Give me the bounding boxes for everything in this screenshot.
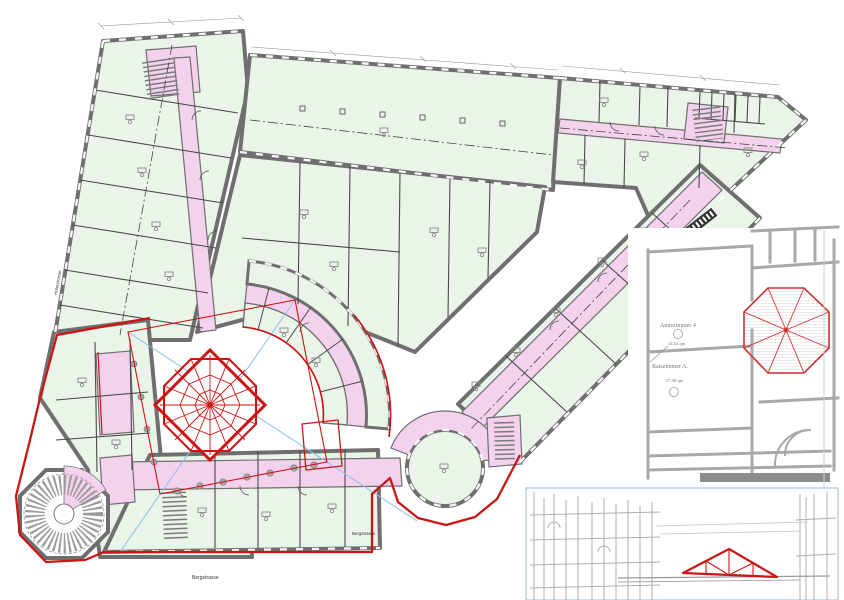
street-label-middle: Bergstrasse [352,531,376,536]
street-label-bottom: Bergstrasse [192,575,219,581]
spiral-stair-tower [20,466,108,558]
floor-plan-drawing: Bergstrasse Bergstrasse Hohestrasse [0,0,844,600]
inset-room1-label: Amtszimmer 4 [660,323,696,329]
inset-section-drawing [526,488,838,600]
inset-room2-label: Ratszimmer A. [652,364,688,370]
inset-octagon-overlay [744,288,829,373]
inset-bottom-wall [700,473,830,482]
inset-border [526,488,838,600]
